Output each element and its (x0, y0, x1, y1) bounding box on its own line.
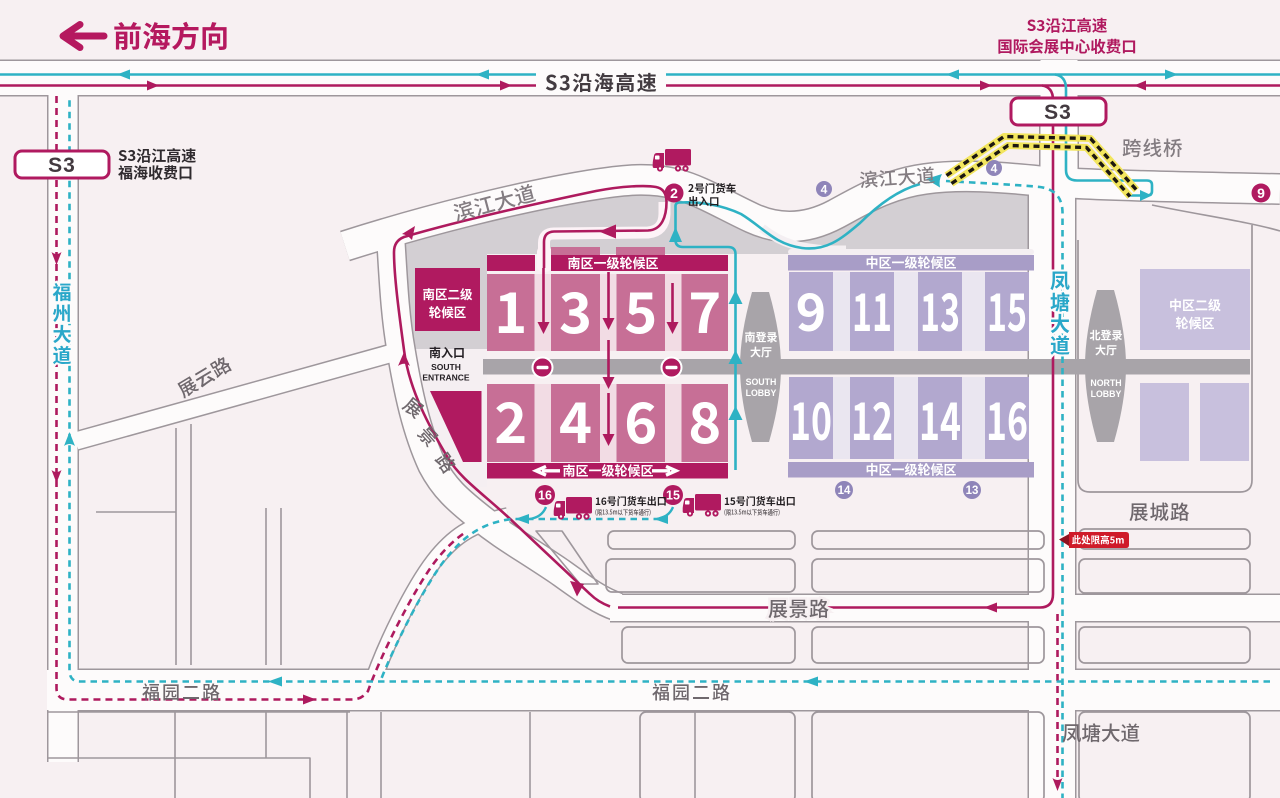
svg-text:10: 10 (790, 380, 832, 455)
svg-text:南登录: 南登录 (745, 329, 778, 345)
svg-text:中区二级: 中区二级 (1169, 295, 1221, 314)
svg-text:中区一级轮候区: 中区一级轮候区 (865, 460, 956, 479)
svg-text:道: 道 (52, 341, 71, 368)
svg-text:SOUTH: SOUTH (746, 377, 777, 387)
svg-text:13: 13 (920, 271, 960, 346)
svg-text:NORTH: NORTH (1090, 378, 1121, 388)
svg-text:凤塘大道: 凤塘大道 (1062, 717, 1140, 746)
svg-text:国际会展中心收费口: 国际会展中心收费口 (997, 35, 1137, 57)
svg-text:8: 8 (688, 379, 721, 460)
svg-text:展景路: 展景路 (768, 593, 830, 622)
svg-text:福海收费口: 福海收费口 (118, 162, 193, 183)
svg-text:轮候区: 轮候区 (429, 302, 467, 321)
svg-text:15: 15 (666, 489, 680, 503)
svg-text:南区一级轮候区: 南区一级轮候区 (562, 461, 653, 480)
svg-text:LOBBY: LOBBY (1091, 389, 1122, 399)
svg-text:3: 3 (559, 269, 592, 350)
svg-text:ENTRANCE: ENTRANCE (422, 373, 470, 383)
svg-text:4: 4 (991, 161, 998, 175)
svg-text:(限13.5m以下货车通行): (限13.5m以下货车通行) (724, 507, 780, 517)
svg-text:12: 12 (851, 380, 893, 455)
svg-text:(限13.5m以下货车通行): (限13.5m以下货车通行) (595, 507, 651, 517)
svg-text:南入口: 南入口 (429, 344, 465, 361)
svg-text:南区二级: 南区二级 (422, 284, 473, 303)
svg-text:福园二路: 福园二路 (652, 679, 732, 705)
svg-text:1: 1 (494, 269, 527, 350)
svg-text:前海方向: 前海方向 (113, 14, 229, 56)
svg-text:S3沿海高速: S3沿海高速 (545, 67, 658, 96)
svg-text:6: 6 (624, 379, 657, 460)
svg-text:滨江大道: 滨江大道 (859, 162, 937, 193)
svg-text:4: 4 (821, 182, 828, 196)
svg-text:LOBBY: LOBBY (746, 388, 777, 398)
svg-text:13: 13 (966, 485, 979, 497)
svg-text:北登录: 北登录 (1090, 327, 1123, 343)
svg-text:此处限高5m: 此处限高5m (1072, 533, 1125, 547)
svg-text:2: 2 (494, 379, 527, 460)
svg-text:9: 9 (1257, 185, 1265, 201)
svg-text:16: 16 (986, 380, 1028, 455)
svg-text:轮候区: 轮候区 (1175, 313, 1214, 332)
svg-text:大厅: 大厅 (750, 344, 772, 360)
svg-text:福园二路: 福园二路 (142, 679, 222, 705)
svg-text:2: 2 (670, 185, 678, 201)
svg-text:S3: S3 (48, 154, 76, 177)
svg-text:S3沿江高速: S3沿江高速 (1027, 14, 1108, 36)
svg-text:大厅: 大厅 (1095, 342, 1117, 358)
svg-text:15: 15 (987, 271, 1027, 346)
svg-text:道: 道 (1050, 330, 1070, 359)
svg-text:出入口: 出入口 (688, 194, 720, 209)
svg-text:9: 9 (796, 271, 827, 346)
svg-text:跨线桥: 跨线桥 (1122, 132, 1184, 161)
svg-text:中区一级轮候区: 中区一级轮候区 (865, 253, 956, 272)
svg-text:14: 14 (919, 380, 961, 455)
svg-text:16: 16 (538, 489, 552, 503)
svg-text:7: 7 (688, 269, 721, 350)
svg-text:SOUTH: SOUTH (431, 362, 461, 372)
svg-text:4: 4 (559, 379, 592, 460)
svg-text:5: 5 (624, 269, 657, 350)
svg-text:展城路: 展城路 (1129, 496, 1191, 525)
svg-text:11: 11 (852, 271, 892, 346)
svg-text:S3: S3 (1044, 101, 1072, 124)
svg-text:14: 14 (838, 485, 851, 497)
